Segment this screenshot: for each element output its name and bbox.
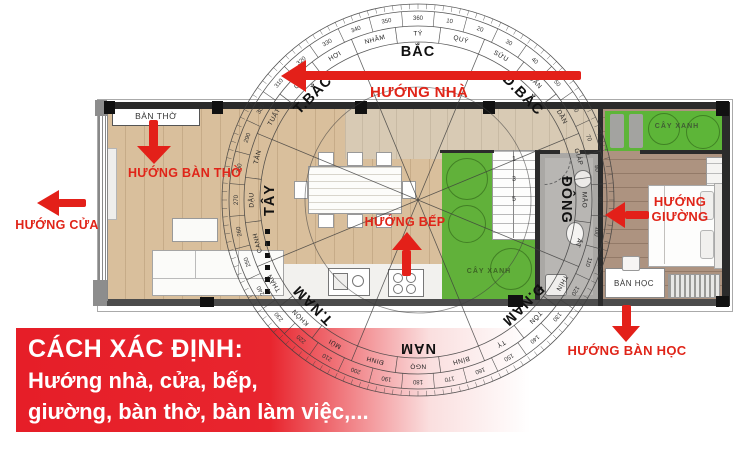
chair	[318, 152, 334, 166]
column	[355, 101, 367, 114]
wall-right	[722, 102, 730, 306]
compass-label: QUÝ	[452, 33, 470, 46]
bedroom-garden-label: CÂY XANH	[645, 123, 709, 130]
huong-nha-label: HƯỚNG NHÀ	[349, 84, 489, 101]
wall-stair-bath	[535, 153, 540, 300]
huong-bep-label: HƯỚNG BẾP	[358, 215, 452, 229]
column	[212, 101, 223, 114]
huong-nha-arrow-bar	[303, 71, 581, 80]
wall-bottom	[100, 299, 730, 306]
desk-label: BÀN HỌC	[607, 279, 661, 288]
column	[508, 295, 523, 307]
banner-line1: Hướng nhà, cửa, bếp,	[28, 368, 258, 394]
toilet-icon	[566, 222, 584, 245]
chair	[318, 214, 334, 228]
wall-bath-top	[580, 150, 603, 154]
huong-giuong-arrowhead-icon	[605, 202, 625, 228]
tv-console	[107, 148, 117, 220]
compass-label: 330	[322, 38, 334, 49]
feng-shui-diagram: CÂY XANH 1 3 5 CÂY XANH BÀN HỌC BÀN THỜ	[0, 0, 750, 450]
huong-cua-arrow-bar	[58, 199, 86, 207]
sofa-back-line	[153, 278, 281, 279]
wall-bath-top	[535, 150, 560, 154]
wall-corner	[93, 280, 107, 306]
huong-giuong-label: HƯỚNG GIƯỜNG	[645, 195, 715, 225]
compass-label: 130	[551, 311, 562, 323]
vent-strip	[668, 274, 720, 298]
column	[104, 101, 115, 114]
huong-ban-hoc-arrow-bar	[622, 305, 631, 327]
wall-bath-bed	[598, 109, 603, 306]
stair-number: 1	[508, 156, 520, 163]
tree-icon	[448, 205, 486, 243]
banner-title: CÁCH XÁC ĐỊNH:	[28, 335, 243, 364]
staircase	[492, 150, 538, 240]
compass-label: BẮC	[401, 42, 435, 60]
huong-nha-arrowhead-icon	[281, 60, 306, 92]
column	[716, 296, 729, 307]
compass-label: 30	[504, 39, 513, 48]
partition-dots	[265, 229, 270, 299]
huong-ban-hoc-label: HƯỚNG BÀN HỌC	[558, 344, 696, 359]
desk-chair	[622, 256, 640, 271]
huong-giuong-line2: GIƯỜNG	[645, 210, 715, 225]
window-left	[98, 109, 108, 301]
banner-line2: giường, bàn thờ, bàn làm việc,...	[28, 399, 369, 425]
dining-table	[308, 166, 402, 214]
bathroom-sink-icon	[574, 170, 592, 188]
coffee-table	[172, 218, 218, 242]
tree-icon	[686, 115, 720, 149]
compass-label: 360	[413, 16, 424, 22]
burner-icon	[406, 284, 416, 294]
compass-label: NHÂM	[363, 32, 386, 46]
huong-ban-tho-arrowhead-icon	[137, 146, 171, 164]
compass-label: 40	[530, 57, 539, 66]
compass-label: 350	[381, 18, 393, 26]
sofa-seat-line	[195, 251, 196, 278]
sink-bowl-icon	[352, 275, 364, 287]
huong-ban-tho-arrow-bar	[149, 120, 158, 147]
column	[200, 297, 214, 307]
wall-bedroom-inner	[640, 150, 722, 154]
staircase-centerline	[513, 150, 514, 238]
washer-icon	[545, 274, 567, 296]
huong-cua-label: HƯỚNG CỬA	[6, 218, 108, 232]
planter	[610, 114, 624, 148]
banner: CÁCH XÁC ĐỊNH: Hướng nhà, cửa, bếp, giườ…	[16, 328, 546, 432]
huong-bep-arrow-bar	[402, 250, 411, 276]
sink-basin	[333, 273, 348, 290]
huong-ban-tho-label: HƯỚNG BÀN THỜ	[118, 166, 252, 180]
huong-giuong-line1: HƯỚNG	[645, 195, 715, 210]
chair	[402, 181, 416, 199]
chair	[294, 181, 308, 199]
stair-number: 3	[508, 176, 520, 183]
huong-ban-hoc-arrowhead-icon	[612, 326, 640, 342]
compass-label: HỢI	[327, 50, 342, 63]
chair	[376, 152, 392, 166]
planter	[629, 114, 643, 148]
column	[483, 101, 495, 114]
garden-center-label: CÂY XANH	[444, 268, 534, 275]
compass-label: TỐN	[527, 309, 545, 327]
sofa-seat-line	[238, 251, 239, 278]
wall-top	[100, 102, 730, 109]
tree-icon	[446, 158, 488, 200]
column	[716, 101, 729, 116]
huong-bep-arrowhead-icon	[392, 232, 422, 250]
compass-label: 340	[350, 25, 362, 34]
huong-cua-arrowhead-icon	[37, 190, 59, 216]
compass-label: 50	[552, 79, 561, 88]
stair-number: 5	[508, 196, 520, 203]
compass-label: 20	[476, 26, 485, 34]
wall-garden-top	[440, 150, 494, 153]
pillow-icon	[700, 230, 714, 259]
compass-label: SỬU	[492, 48, 510, 64]
compass-label: TÝ	[413, 29, 422, 38]
burner-icon	[393, 284, 403, 294]
chair	[347, 152, 363, 166]
compass-label: 10	[446, 18, 454, 25]
